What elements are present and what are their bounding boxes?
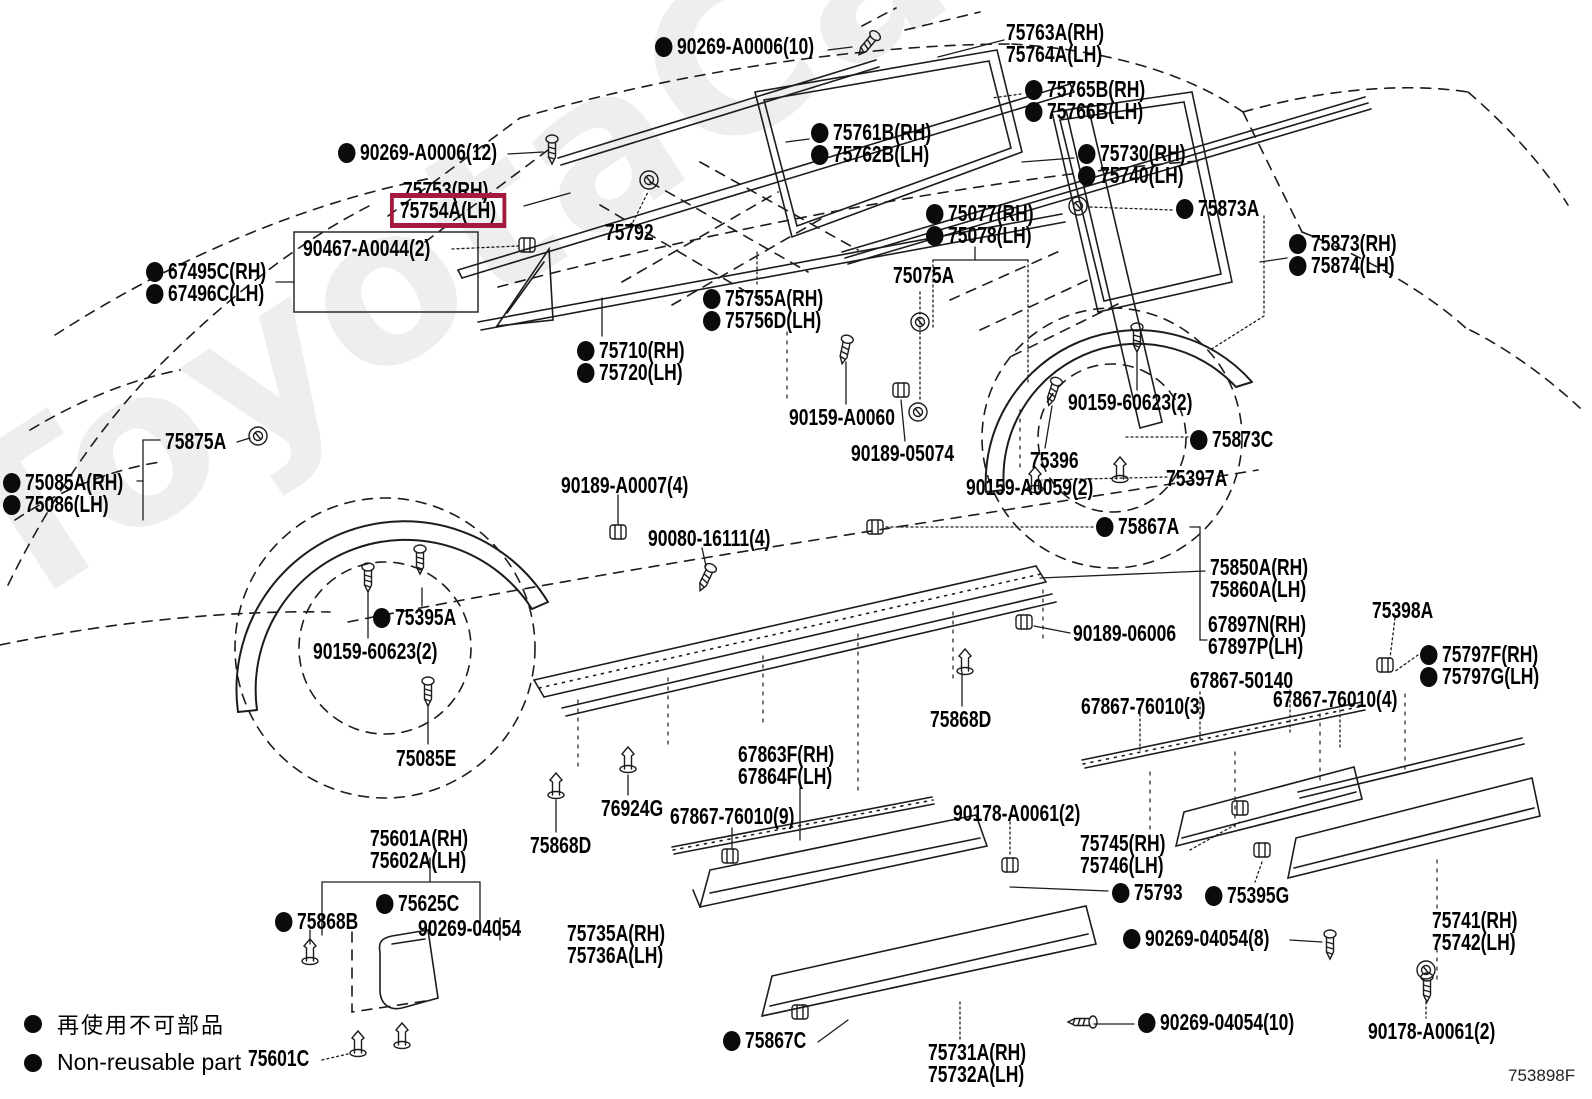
part-number-text: 90269-A0006(12) [360, 142, 497, 163]
part-number-text: 75740(LH) [1100, 165, 1184, 186]
part-number-text: 75732A(LH) [928, 1064, 1024, 1085]
part-number-text: 75741(RH) [1432, 910, 1518, 931]
non-reusable-dot-icon [373, 608, 390, 628]
part-number-text: 90269-A0006(10) [677, 36, 814, 57]
non-reusable-dot-icon [811, 123, 828, 143]
part-number-text: 75075A [893, 265, 954, 286]
part-number-text: 75765B(RH) [1047, 79, 1145, 100]
part-label-75746-lh-[interactable]: 75746(LH) [1080, 855, 1164, 876]
part-number-text: 75766B(LH) [1047, 101, 1143, 122]
part-label-75745-rh-[interactable]: 75745(RH) [1080, 833, 1166, 854]
part-label-75601c[interactable]: 75601C [248, 1048, 309, 1069]
part-number-text: 75755A(RH) [725, 288, 823, 309]
legend-jp-text: 再使用不可部品 [57, 1008, 225, 1040]
legend: 再使用不可部品 Non-reusable part [24, 1008, 241, 1085]
part-number-text: 75793 [1134, 882, 1183, 903]
part-number-text: 75736A(LH) [567, 945, 663, 966]
non-reusable-dot-icon [275, 912, 292, 932]
part-label-75730-rh-[interactable]: 75730(RH) [1078, 143, 1186, 164]
non-reusable-dot-icon [926, 226, 943, 246]
non-reusable-dot-icon [577, 363, 594, 383]
part-label-67867-76010-9-[interactable]: 67867-76010(9) [670, 806, 794, 827]
part-number-text: 75868B [297, 911, 358, 932]
part-number-text: 75860A(LH) [1210, 579, 1306, 600]
part-number-text: 75395A [395, 607, 456, 628]
part-label-90269-04054-10-[interactable]: 90269-04054(10) [1138, 1012, 1294, 1033]
part-number-text: 75868D [930, 709, 991, 730]
part-label-67867-76010-3-[interactable]: 67867-76010(3) [1081, 696, 1205, 717]
part-number-text: 67897N(RH) [1208, 614, 1306, 635]
part-label-75077-rh-[interactable]: 75077(RH) [926, 203, 1034, 224]
part-label-90189-05074[interactable]: 90189-05074 [851, 443, 954, 464]
non-reusable-dot-icon [1096, 517, 1113, 537]
part-number-text: 90159-60623(2) [313, 641, 437, 662]
non-reusable-dot-icon [146, 262, 163, 282]
part-label-67867-76010-4-[interactable]: 67867-76010(4) [1273, 689, 1397, 710]
non-reusable-dot-icon [1289, 256, 1306, 276]
part-number-text: 67867-76010(3) [1081, 696, 1205, 717]
part-number-text: 67496C(LH) [168, 283, 264, 304]
part-number-text: 75085A(RH) [25, 472, 123, 493]
non-reusable-dot-icon [703, 311, 720, 331]
parts-diagram: ToyotaCarMine.ru [0, 0, 1592, 1099]
part-label-75710-rh-[interactable]: 75710(RH) [577, 340, 685, 361]
legend-en-text: Non-reusable part [57, 1049, 241, 1076]
part-label-67864f-lh-[interactable]: 67864F(LH) [738, 766, 832, 787]
part-label-75764a-lh-[interactable]: 75764A(LH) [1006, 44, 1102, 65]
part-label-75868d[interactable]: 75868D [930, 709, 991, 730]
part-number-text: 76924G [601, 798, 663, 819]
part-label-75735a-rh-[interactable]: 75735A(RH) [567, 923, 665, 944]
part-number-text: 90159-60623(2) [1068, 392, 1192, 413]
part-number-text: 75735A(RH) [567, 923, 665, 944]
part-number-text: 75720(LH) [599, 362, 683, 383]
part-number-text: 75797F(RH) [1442, 644, 1538, 665]
part-number-text: 75625C [398, 893, 459, 914]
part-label-75763a-rh-[interactable]: 75763A(RH) [1006, 22, 1104, 43]
part-label-75765b-rh-[interactable]: 75765B(RH) [1025, 79, 1145, 100]
non-reusable-dot-icon [1420, 667, 1437, 687]
part-number-text: 75078(LH) [948, 225, 1032, 246]
part-number-text: 75873A [1198, 198, 1259, 219]
part-label-75761b-rh-[interactable]: 75761B(RH) [811, 122, 931, 143]
non-reusable-dot-icon [703, 289, 720, 309]
part-number-text: 67867-76010(9) [670, 806, 794, 827]
part-number-text: 75873C [1212, 429, 1273, 450]
non-reusable-dot-icon [1289, 234, 1306, 254]
non-reusable-dot-icon [655, 37, 672, 57]
projection-lines [578, 332, 1437, 985]
non-reusable-dot-icon [1420, 645, 1437, 665]
part-label-90178-a0061-2-[interactable]: 90178-A0061(2) [953, 803, 1080, 824]
part-label-75867c[interactable]: 75867C [723, 1030, 806, 1051]
part-number-text: 75850A(RH) [1210, 557, 1308, 578]
part-label-75740-lh-[interactable]: 75740(LH) [1078, 165, 1184, 186]
non-reusable-dot-icon [1078, 144, 1095, 164]
part-label-75625c[interactable]: 75625C [376, 893, 459, 914]
part-label-75873-rh-[interactable]: 75873(RH) [1289, 233, 1397, 254]
part-label-90269-04054[interactable]: 90269-04054 [418, 918, 521, 939]
part-label-90159-60623-2-[interactable]: 90159-60623(2) [313, 641, 437, 662]
non-reusable-dot-icon [811, 145, 828, 165]
part-number-text: 75746(LH) [1080, 855, 1164, 876]
part-number-text: 75762B(LH) [833, 144, 929, 165]
part-label-75395a[interactable]: 75395A [373, 607, 456, 628]
part-number-text: 67863F(RH) [738, 744, 834, 765]
part-label-75396[interactable]: 75396 [1030, 450, 1079, 471]
part-label-75754a-lh-[interactable]: 75754A(LH) [390, 193, 506, 228]
part-label-90159-a0060[interactable]: 90159-A0060 [789, 407, 895, 428]
part-label-75736a-lh-[interactable]: 75736A(LH) [567, 945, 663, 966]
part-label-75742-lh-[interactable]: 75742(LH) [1432, 932, 1516, 953]
non-reusable-dot-icon [723, 1031, 740, 1051]
part-label-90269-a0006-12-[interactable]: 90269-A0006(12) [338, 142, 497, 163]
part-label-67897n-rh-[interactable]: 67897N(RH) [1208, 614, 1306, 635]
non-reusable-dot-icon [577, 341, 594, 361]
part-number-text: 90189-A0007(4) [561, 475, 688, 496]
non-reusable-dot-icon [1025, 80, 1042, 100]
part-label-67495c-rh-[interactable]: 67495C(RH) [146, 261, 266, 282]
part-label-75873a[interactable]: 75873A [1176, 198, 1259, 219]
part-number-text: 75792 [605, 222, 654, 243]
non-reusable-dot-icon [1025, 102, 1042, 122]
part-label-75792[interactable]: 75792 [605, 222, 654, 243]
part-number-text: 75867C [745, 1030, 806, 1051]
part-label-75793[interactable]: 75793 [1112, 882, 1183, 903]
part-label-75875a[interactable]: 75875A [165, 431, 226, 452]
part-label-75873c[interactable]: 75873C [1190, 429, 1273, 450]
part-label-75397a[interactable]: 75397A [1166, 468, 1227, 489]
part-label-75755a-rh-[interactable]: 75755A(RH) [703, 288, 823, 309]
part-label-75398a[interactable]: 75398A [1372, 600, 1433, 621]
part-label-76924g[interactable]: 76924G [601, 798, 663, 819]
non-reusable-dot-icon [1078, 166, 1095, 186]
part-label-90189-06006[interactable]: 90189-06006 [1073, 623, 1176, 644]
part-label-75860a-lh-[interactable]: 75860A(LH) [1210, 579, 1306, 600]
part-number-text: 90159-A0059(2) [966, 477, 1093, 498]
part-label-75874-lh-[interactable]: 75874(LH) [1289, 255, 1395, 276]
part-label-75395g[interactable]: 75395G [1205, 885, 1289, 906]
part-number-text: 90269-04054(10) [1160, 1012, 1294, 1033]
part-number-text: 75874(LH) [1311, 255, 1395, 276]
part-number-text: 75077(RH) [948, 203, 1034, 224]
non-reusable-dot-icon [1205, 886, 1222, 906]
part-number-text: 75710(RH) [599, 340, 685, 361]
part-number-text: 90178-A0061(2) [1368, 1021, 1495, 1042]
part-number-text: 75873(RH) [1311, 233, 1397, 254]
part-label-90189-a0007-4-[interactable]: 90189-A0007(4) [561, 475, 688, 496]
part-number-text: 75731A(RH) [928, 1042, 1026, 1063]
non-reusable-dot-icon [3, 495, 20, 515]
part-label-75732a-lh-[interactable]: 75732A(LH) [928, 1064, 1024, 1085]
part-label-75741-rh-[interactable]: 75741(RH) [1432, 910, 1518, 931]
part-label-75756d-lh-[interactable]: 75756D(LH) [703, 310, 821, 331]
part-label-75850a-rh-[interactable]: 75850A(RH) [1210, 557, 1308, 578]
part-number-text: 75763A(RH) [1006, 22, 1104, 43]
part-label-90467-a0044-2-[interactable]: 90467-A0044(2) [303, 238, 430, 259]
part-label-90159-60623-2-[interactable]: 90159-60623(2) [1068, 392, 1192, 413]
part-label-75720-lh-[interactable]: 75720(LH) [577, 362, 683, 383]
part-number-text: 90467-A0044(2) [303, 238, 430, 259]
non-reusable-dot-icon [1138, 1013, 1155, 1033]
part-label-90269-a0006-10-[interactable]: 90269-A0006(10) [655, 36, 814, 57]
legend-row-en: Non-reusable part [24, 1049, 241, 1076]
part-label-75762b-lh-[interactable]: 75762B(LH) [811, 144, 929, 165]
part-label-75797g-lh-[interactable]: 75797G(LH) [1420, 666, 1539, 687]
part-number-text: 75764A(LH) [1006, 44, 1102, 65]
non-reusable-dot-icon [376, 894, 393, 914]
part-number-text: 90189-06006 [1073, 623, 1176, 644]
part-label-67897p-lh-[interactable]: 67897P(LH) [1208, 636, 1303, 657]
part-label-75085a-rh-[interactable]: 75085A(RH) [3, 472, 123, 493]
part-number-text: 75756D(LH) [725, 310, 821, 331]
diagram-code: 753898F [1508, 1066, 1575, 1086]
part-label-90159-a0059-2-[interactable]: 90159-A0059(2) [966, 477, 1093, 498]
part-label-75797f-rh-[interactable]: 75797F(RH) [1420, 644, 1538, 665]
part-number-text: 75797G(LH) [1442, 666, 1539, 687]
legend-row-jp: 再使用不可部品 [24, 1008, 241, 1040]
part-label-75075a[interactable]: 75075A [893, 265, 954, 286]
part-number-text: 90159-A0060 [789, 407, 895, 428]
non-reusable-dot-icon [24, 1054, 42, 1072]
part-number-text: 90189-05074 [851, 443, 954, 464]
part-label-90178-a0061-2-[interactable]: 90178-A0061(2) [1368, 1021, 1495, 1042]
part-number-text: 75085E [396, 748, 456, 769]
part-number-text: 75730(RH) [1100, 143, 1186, 164]
part-number-text: 75601C [248, 1048, 309, 1069]
part-label-75766b-lh-[interactable]: 75766B(LH) [1025, 101, 1143, 122]
part-number-text: 75745(RH) [1080, 833, 1166, 854]
non-reusable-dot-icon [1112, 883, 1129, 903]
part-number-text: 90269-04054(8) [1145, 928, 1269, 949]
part-label-90080-16111-4-[interactable]: 90080-16111(4) [648, 528, 770, 549]
diagram-line-art [0, 0, 1592, 1099]
part-number-text: 75754A(LH) [400, 200, 496, 221]
part-number-text: 75602A(LH) [370, 850, 466, 871]
part-number-text: 75868D [530, 835, 591, 856]
non-reusable-dot-icon [1123, 929, 1140, 949]
part-number-text: 75397A [1166, 468, 1227, 489]
part-label-75602a-lh-[interactable]: 75602A(LH) [370, 850, 466, 871]
part-label-75731a-rh-[interactable]: 75731A(RH) [928, 1042, 1026, 1063]
part-number-text: 75742(LH) [1432, 932, 1516, 953]
part-label-75085e[interactable]: 75085E [396, 748, 456, 769]
part-number-text: 90178-A0061(2) [953, 803, 1080, 824]
part-label-75867a[interactable]: 75867A [1096, 516, 1179, 537]
part-number-text: 75395G [1227, 885, 1289, 906]
non-reusable-dot-icon [146, 284, 163, 304]
part-number-text: 67864F(LH) [738, 766, 832, 787]
part-label-75601a-rh-[interactable]: 75601A(RH) [370, 828, 468, 849]
non-reusable-dot-icon [338, 143, 355, 163]
part-number-text: 75086(LH) [25, 494, 109, 515]
part-number-text: 75396 [1030, 450, 1079, 471]
part-number-text: 67495C(RH) [168, 261, 266, 282]
part-number-text: 75601A(RH) [370, 828, 468, 849]
part-label-75868b[interactable]: 75868B [275, 911, 358, 932]
part-label-75086-lh-[interactable]: 75086(LH) [3, 494, 109, 515]
part-number-text: 90269-04054 [418, 918, 521, 939]
part-label-75868d[interactable]: 75868D [530, 835, 591, 856]
part-number-text: 75398A [1372, 600, 1433, 621]
part-label-67863f-rh-[interactable]: 67863F(RH) [738, 744, 834, 765]
car-outline [0, 8, 1580, 1012]
non-reusable-dot-icon [926, 204, 943, 224]
non-reusable-dot-icon [3, 473, 20, 493]
part-number-text: 75875A [165, 431, 226, 452]
non-reusable-dot-icon [1176, 199, 1193, 219]
part-label-67496c-lh-[interactable]: 67496C(LH) [146, 283, 264, 304]
non-reusable-dot-icon [24, 1015, 42, 1033]
part-label-75078-lh-[interactable]: 75078(LH) [926, 225, 1032, 246]
part-number-text: 90080-16111(4) [648, 528, 770, 549]
non-reusable-dot-icon [1190, 430, 1207, 450]
part-number-text: 67897P(LH) [1208, 636, 1303, 657]
part-label-90269-04054-8-[interactable]: 90269-04054(8) [1123, 928, 1269, 949]
part-number-text: 67867-76010(4) [1273, 689, 1397, 710]
part-number-text: 75867A [1118, 516, 1179, 537]
part-number-text: 75761B(RH) [833, 122, 931, 143]
